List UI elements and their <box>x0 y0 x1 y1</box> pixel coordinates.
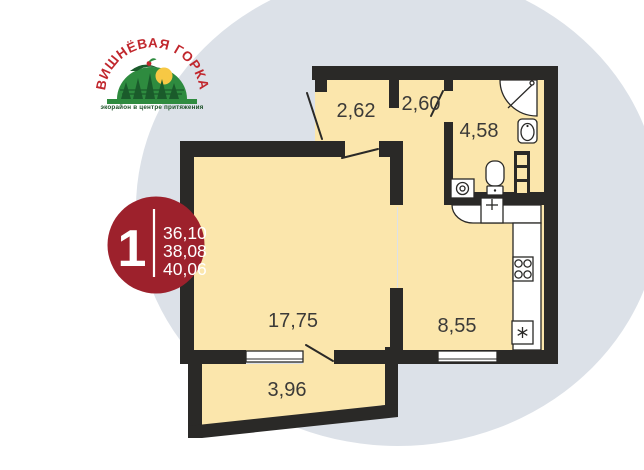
shower-head-icon <box>530 81 534 85</box>
room-label-entrance-hall: 2,62 <box>337 100 376 122</box>
logo-tagline: экорайон в центре притяжения <box>100 103 203 111</box>
badge-area-1: 36,10 <box>163 223 207 243</box>
towel-rail-rung <box>514 179 530 182</box>
room-label-balcony: 3,96 <box>268 379 307 401</box>
kitchen-window <box>438 351 497 362</box>
sun-icon <box>156 68 173 85</box>
badge-rooms-count: 1 <box>118 220 147 278</box>
wall-balcony-left <box>188 364 202 426</box>
wall-right <box>544 66 558 364</box>
wall-living-top <box>180 141 345 157</box>
wall-hall-stub <box>389 66 399 108</box>
toilet-button <box>494 189 496 191</box>
wall-top <box>312 66 558 80</box>
room-label-living-room: 17,75 <box>268 310 318 332</box>
badge-area-3: 40,06 <box>163 259 207 279</box>
wall-entry-stub <box>315 66 327 92</box>
room-label-bathroom: 4,58 <box>460 120 499 142</box>
living-window <box>246 351 303 362</box>
floorplan-flyer: 2,62 2,60 4,58 17,75 8,55 3,96 ВИШНЁВАЯ … <box>0 0 644 470</box>
toilet-bowl-icon <box>486 161 504 186</box>
cherry-icon <box>147 61 152 66</box>
wall-bath-stub <box>444 66 453 91</box>
washbasin-tap <box>526 125 528 127</box>
towel-rail-rung <box>514 165 530 168</box>
room-label-corridor: 2,60 <box>402 93 441 115</box>
wall-divider-upper <box>390 141 403 205</box>
towel-rail-slot <box>517 155 527 193</box>
badge-area-2: 38,08 <box>163 241 207 261</box>
room-label-kitchen: 8,55 <box>438 315 477 337</box>
wall-living-bottom-left <box>180 350 246 364</box>
